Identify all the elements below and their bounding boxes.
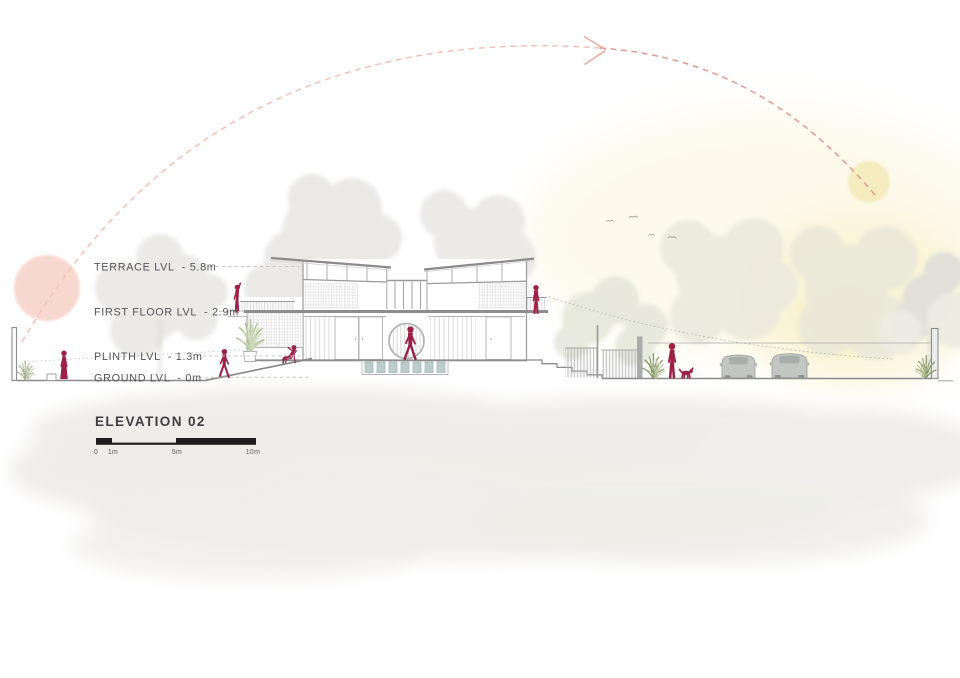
- first-floor-level-label: FIRST FLOOR LVL - 2.9m: [94, 307, 239, 319]
- plinth-level-label: PLINTH LVL - 1.3m: [94, 351, 203, 363]
- sun-path-arrow-icon: [584, 37, 606, 65]
- gate-post: [637, 337, 643, 380]
- sun-disc-east-icon: [848, 161, 890, 203]
- terrace-level-label: TERRACE LVL - 5.8m: [94, 262, 217, 274]
- drawing-title: ELEVATION 02: [95, 414, 206, 429]
- sun-disc-west-icon: [14, 255, 80, 321]
- scale-tick-5m: 5m: [172, 449, 182, 456]
- compound-wall-left: [12, 328, 17, 381]
- car-icon: [720, 355, 757, 378]
- scale-tick-1m: 1m: [108, 449, 118, 456]
- scale-tick-10m: 10m: [246, 449, 261, 456]
- stepping-stones: [362, 360, 448, 375]
- person-figure: [669, 343, 676, 377]
- elevation-02-svg: TERRACE LVL - 5.8m FIRST FLOOR LVL - 2.9…: [0, 0, 960, 678]
- scale-tick-0: 0: [94, 449, 98, 456]
- person-figure: [219, 349, 228, 377]
- terrace-railing: [240, 302, 295, 312]
- ground-level-label: GROUND LVL - 0m: [94, 372, 202, 384]
- tree-icon: [95, 234, 228, 358]
- person-figure: [60, 351, 68, 380]
- car-icon: [770, 354, 810, 378]
- dog-figure: [680, 368, 693, 378]
- elevation-drawing-canvas: TERRACE LVL - 5.8m FIRST FLOOR LVL - 2.9…: [0, 0, 960, 678]
